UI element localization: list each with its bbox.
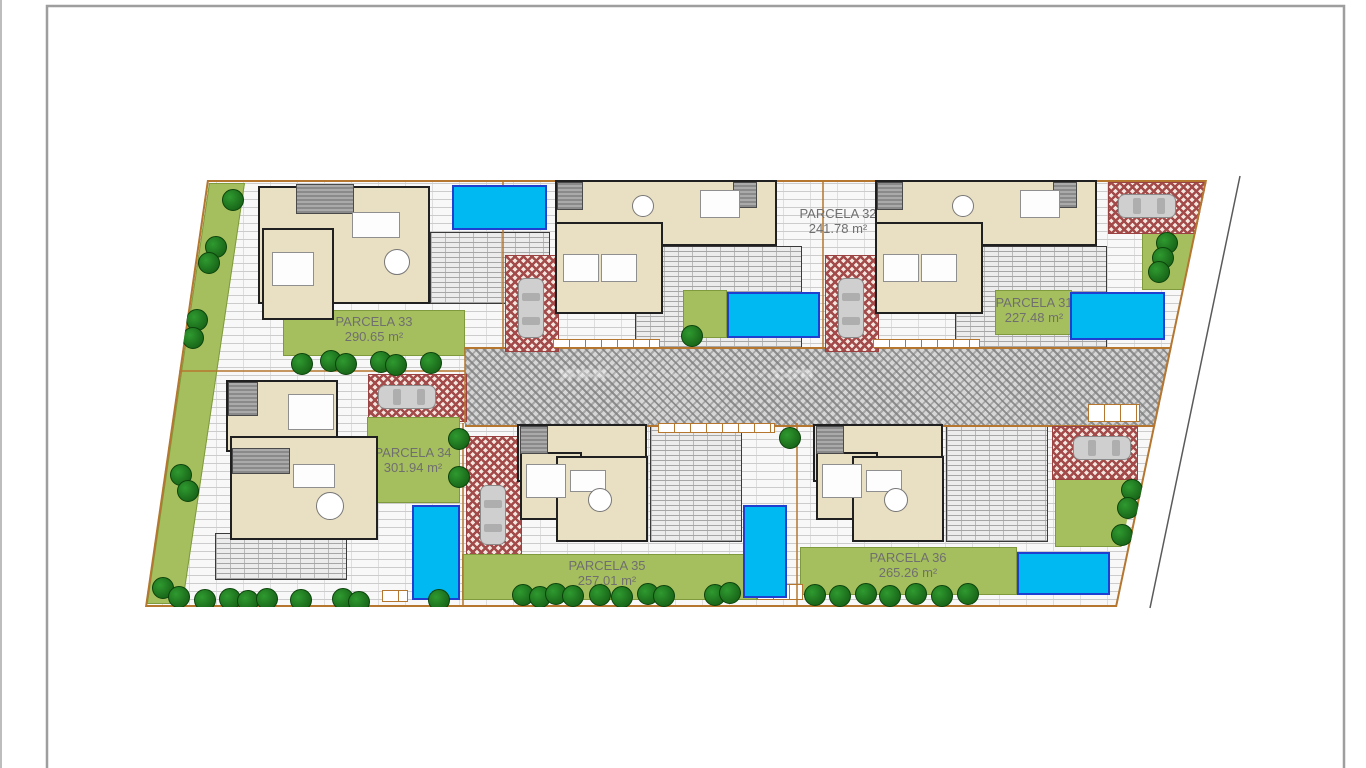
car-window bbox=[484, 524, 502, 532]
furniture bbox=[526, 464, 566, 498]
tree bbox=[335, 353, 357, 375]
furniture bbox=[700, 190, 740, 218]
tree bbox=[1148, 261, 1170, 283]
parcel-area: 265.26 m² bbox=[818, 565, 998, 580]
car-window bbox=[522, 293, 540, 301]
tree bbox=[611, 586, 633, 608]
car-window bbox=[842, 317, 860, 325]
furniture bbox=[1020, 190, 1060, 218]
watermark: WWW.······················.COM bbox=[560, 366, 880, 383]
round-table bbox=[316, 492, 344, 520]
tree bbox=[719, 582, 741, 604]
tree bbox=[194, 589, 216, 611]
parcel-area: 290.65 m² bbox=[284, 329, 464, 344]
round-table bbox=[384, 249, 410, 275]
utility-block bbox=[228, 382, 258, 416]
swimming-pool bbox=[1070, 292, 1165, 340]
tree bbox=[291, 353, 313, 375]
utility-block bbox=[877, 182, 903, 210]
car-window bbox=[1088, 440, 1096, 456]
road bbox=[465, 347, 1175, 427]
tree bbox=[562, 585, 584, 607]
kerb-tiles bbox=[553, 339, 660, 348]
car-window bbox=[1112, 440, 1120, 456]
utility-block bbox=[296, 184, 354, 214]
kerb-tiles bbox=[658, 423, 775, 433]
furniture bbox=[601, 254, 637, 282]
car-window bbox=[393, 389, 401, 405]
car-window bbox=[1133, 198, 1141, 214]
round-table bbox=[884, 488, 908, 512]
tree bbox=[905, 583, 927, 605]
tree bbox=[448, 466, 470, 488]
car bbox=[838, 278, 864, 338]
utility-block bbox=[232, 448, 290, 474]
tree bbox=[681, 325, 703, 347]
utility-block bbox=[816, 426, 844, 454]
tree bbox=[290, 589, 312, 611]
car bbox=[518, 278, 544, 338]
car-window bbox=[842, 293, 860, 301]
tree bbox=[589, 584, 611, 606]
tree bbox=[256, 588, 278, 610]
round-table bbox=[588, 488, 612, 512]
tree bbox=[879, 585, 901, 607]
furniture bbox=[822, 464, 862, 498]
swimming-pool bbox=[727, 292, 820, 338]
kerb-tiles bbox=[1088, 404, 1140, 422]
tree bbox=[1111, 524, 1133, 546]
car bbox=[378, 385, 436, 409]
round-table bbox=[632, 195, 654, 217]
swimming-pool bbox=[743, 505, 787, 598]
furniture bbox=[563, 254, 599, 282]
kerb-tiles bbox=[873, 339, 980, 348]
tree bbox=[653, 585, 675, 607]
round-table bbox=[952, 195, 974, 217]
pergola-deck bbox=[215, 533, 347, 580]
car bbox=[1118, 194, 1176, 218]
kerb-tiles bbox=[382, 590, 408, 602]
tree bbox=[931, 585, 953, 607]
tree bbox=[420, 352, 442, 374]
furniture bbox=[288, 394, 334, 430]
parcel-label: PARCELA 35257.01 m² bbox=[517, 558, 697, 590]
tree bbox=[804, 584, 826, 606]
site-plan: WWW.······················.COM PARCELA 3… bbox=[0, 0, 1366, 768]
tree bbox=[428, 589, 450, 611]
tree bbox=[957, 583, 979, 605]
utility-block bbox=[520, 426, 548, 454]
tree bbox=[348, 591, 370, 613]
tree bbox=[448, 428, 470, 450]
furniture bbox=[272, 252, 314, 286]
car-window bbox=[417, 389, 425, 405]
furniture bbox=[352, 212, 400, 238]
tree bbox=[1117, 497, 1139, 519]
tree bbox=[222, 189, 244, 211]
furniture bbox=[921, 254, 957, 282]
tree bbox=[829, 585, 851, 607]
tree bbox=[177, 480, 199, 502]
car-window bbox=[522, 317, 540, 325]
utility-block bbox=[557, 182, 583, 210]
swimming-pool bbox=[1017, 552, 1110, 595]
car-window bbox=[1157, 198, 1165, 214]
swimming-pool bbox=[452, 185, 547, 230]
parcel-name: PARCELA 36 bbox=[818, 550, 998, 565]
parcel-name: PARCELA 35 bbox=[517, 558, 697, 573]
tree bbox=[182, 327, 204, 349]
pergola-deck bbox=[650, 425, 742, 542]
swimming-pool bbox=[412, 505, 460, 600]
tree bbox=[168, 586, 190, 608]
furniture bbox=[293, 464, 335, 488]
tree bbox=[779, 427, 801, 449]
car bbox=[480, 485, 506, 545]
parcel-label: PARCELA 36265.26 m² bbox=[818, 550, 998, 582]
site-plan-page: WWW.······················.COM PARCELA 3… bbox=[0, 0, 1366, 768]
tree bbox=[385, 354, 407, 376]
tree bbox=[855, 583, 877, 605]
car-window bbox=[484, 500, 502, 508]
car bbox=[1073, 436, 1131, 460]
pergola-deck bbox=[946, 425, 1048, 542]
furniture bbox=[883, 254, 919, 282]
tree bbox=[198, 252, 220, 274]
